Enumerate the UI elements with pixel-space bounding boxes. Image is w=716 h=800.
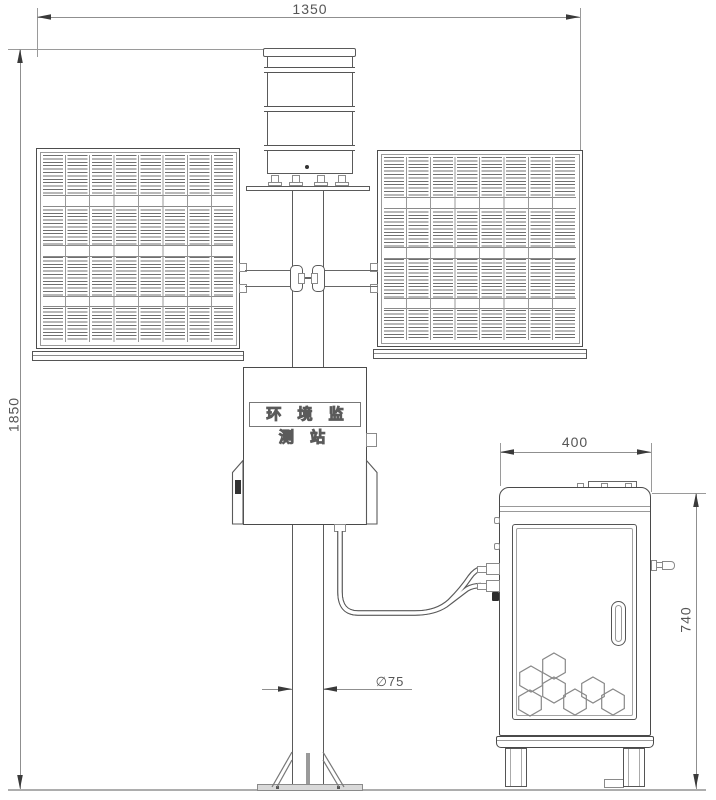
control-box-vent bbox=[235, 480, 241, 494]
signal-cable bbox=[340, 530, 481, 613]
sensor-indicator-dot bbox=[305, 165, 309, 169]
sensor-ring-2 bbox=[264, 106, 355, 112]
solar-panel-left-rail bbox=[32, 351, 244, 361]
technical-drawing-canvas: 1350 1850 400 740 ∅75 环 境 监 测 站 bbox=[0, 0, 716, 800]
cabinet-leg-left bbox=[505, 748, 527, 787]
support-arm-left bbox=[245, 270, 291, 287]
cabinet-side-block bbox=[492, 592, 499, 601]
support-arm-right bbox=[325, 270, 378, 287]
cabinet-leg-right bbox=[623, 748, 645, 787]
solar-panel-left bbox=[36, 148, 240, 349]
cable-connector-body bbox=[486, 580, 500, 592]
cable-connector-body bbox=[486, 563, 500, 575]
solar-panel-right-cells bbox=[384, 157, 576, 340]
cabinet-base-rail bbox=[496, 736, 654, 748]
weather-sensor-body bbox=[267, 56, 353, 174]
station-name-label: 环 境 监 测 站 bbox=[249, 402, 361, 427]
solar-panel-right-rail bbox=[373, 349, 587, 359]
extension-line-cabinet-top bbox=[652, 493, 706, 494]
clamp-nut-right bbox=[311, 273, 318, 284]
door-handle-slot bbox=[615, 605, 622, 642]
dimension-cabinet-width: 400 bbox=[549, 435, 601, 450]
control-box-latch bbox=[366, 433, 377, 447]
dimension-overall-height: 1850 bbox=[7, 384, 22, 446]
dimension-line-overall-width bbox=[37, 17, 580, 18]
box-flange-right bbox=[367, 461, 378, 525]
solar-panel-left-cells bbox=[43, 155, 233, 342]
cabinet-side-knob bbox=[494, 517, 500, 524]
cabinet-foot-step bbox=[604, 779, 624, 788]
dimension-line-cabinet-width bbox=[500, 452, 651, 453]
leader-line-pole-right bbox=[323, 689, 412, 690]
cable-gland bbox=[334, 524, 346, 532]
sensor-ring-3 bbox=[264, 145, 355, 151]
sensor-mounting-plate bbox=[246, 186, 370, 191]
extension-line-top-right bbox=[580, 8, 581, 151]
extension-line-cabinet-right bbox=[651, 443, 652, 492]
antenna-rod bbox=[662, 561, 675, 570]
anchor-bolt-mark bbox=[276, 786, 279, 789]
extension-line-sensor-top bbox=[8, 49, 264, 50]
dimension-line-cabinet-height bbox=[696, 493, 697, 789]
leader-line-pole-left bbox=[262, 689, 292, 690]
dimension-overall-width: 1350 bbox=[283, 2, 337, 17]
solar-panel-right bbox=[377, 150, 583, 347]
dimension-cabinet-height: 740 bbox=[679, 589, 694, 651]
anchor-bolt-mark bbox=[337, 786, 340, 789]
sensor-ring-1 bbox=[264, 67, 355, 73]
clamp-nut-left bbox=[298, 273, 305, 284]
base-plate bbox=[257, 784, 363, 791]
cabinet-side-knob bbox=[494, 543, 500, 550]
extension-line-cabinet-left bbox=[500, 443, 501, 486]
anchor-stud bbox=[306, 753, 310, 786]
cabinet-cap-seam bbox=[500, 506, 650, 512]
dimension-pole-diameter: ∅75 bbox=[364, 674, 416, 689]
